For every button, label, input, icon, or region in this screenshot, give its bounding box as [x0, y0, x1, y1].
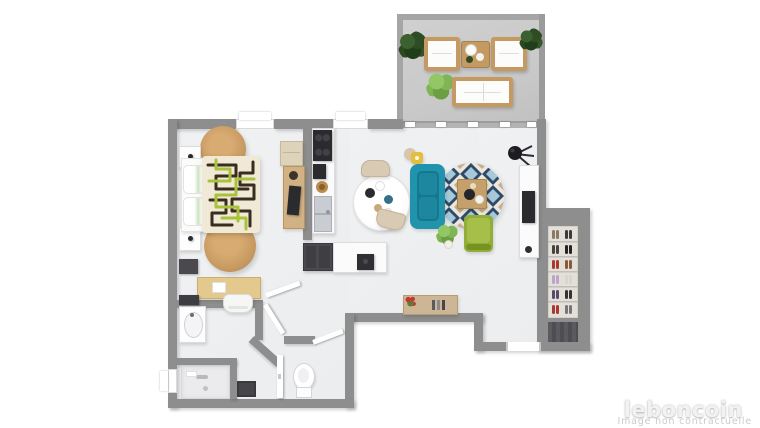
bathroom-vanity [179, 306, 206, 343]
wall-shower-h [177, 358, 237, 365]
faucet-icon [190, 313, 194, 317]
cooktop [313, 130, 332, 161]
bathroom-window-sill [160, 371, 168, 391]
wall-left [168, 119, 177, 408]
kitchen-sink [313, 196, 332, 232]
bedroom-window [236, 119, 274, 129]
tv-icon [522, 191, 535, 223]
armchair-green [464, 215, 493, 252]
red-flowers-icon [405, 296, 416, 308]
sliding-glass-door [403, 121, 538, 128]
terrace-plant-icon [519, 28, 543, 52]
watermark-disclaimer: Image non contractuelle [618, 416, 753, 427]
kitchen-window [333, 119, 368, 129]
toilet [292, 363, 314, 397]
desk-chair [223, 294, 253, 313]
entrance-mat [548, 322, 578, 342]
serving-plate [464, 189, 475, 200]
tv-unit [519, 165, 539, 258]
wall-wc-top [284, 336, 315, 344]
bed [181, 156, 260, 232]
bed-pillow-2 [183, 197, 204, 226]
bedroom-window-sill [239, 112, 271, 120]
outdoor-armchair-1 [424, 37, 460, 71]
bedroom-wall-desk [283, 166, 305, 229]
sofa [410, 164, 445, 229]
bathroom-shelf [179, 295, 199, 305]
bath-mat [237, 381, 256, 397]
terrace-wall-right [539, 14, 545, 126]
shower-faucet-icon [196, 375, 208, 379]
wooden-bowl [316, 181, 328, 193]
dining-chair-north [361, 160, 390, 177]
cup-icon [476, 53, 484, 61]
plate-dark [365, 188, 375, 198]
shoe-rack [548, 226, 578, 318]
laptop-icon [287, 186, 301, 216]
decor-vase [522, 172, 535, 189]
bathroom-window [168, 369, 177, 393]
kitchen-window-sill [336, 112, 365, 120]
entrance-door [506, 342, 541, 351]
island-appliance [357, 254, 374, 270]
outdoor-coffee-table [461, 41, 490, 68]
coffee-table [457, 179, 487, 209]
shower-tray [181, 366, 230, 399]
tray-icon [465, 44, 477, 56]
bed-duvet [202, 156, 260, 233]
bed-pillow-1 [183, 165, 204, 194]
coffee-machine [313, 164, 326, 179]
terrace-wall-top [397, 14, 545, 20]
kitchen-island-cabinets [303, 243, 333, 271]
stool-yellow [411, 152, 423, 164]
terrace-wall-left [397, 14, 403, 126]
paper-sheet [212, 282, 226, 293]
wall-top-c [368, 119, 403, 129]
floorplan-image: leboncoin Image non contractuelle [0, 0, 760, 428]
wall-shower-v [230, 358, 237, 399]
outdoor-sofa [452, 77, 513, 107]
plate-blue [384, 195, 393, 204]
drain-icon [203, 386, 208, 391]
bedroom-side-cabinet [280, 141, 303, 166]
speaker-icon [525, 246, 532, 253]
potted-plant-icon [466, 56, 473, 63]
bedroom-wardrobe [179, 259, 198, 274]
sideboard [403, 295, 458, 315]
wall-bath-east [255, 300, 263, 340]
kitchen-island-counter [333, 242, 387, 273]
wc-sliding-door [277, 355, 283, 398]
plate-white [375, 181, 385, 191]
wall-bottom-left [168, 399, 354, 408]
wall-hall-right [345, 313, 354, 408]
